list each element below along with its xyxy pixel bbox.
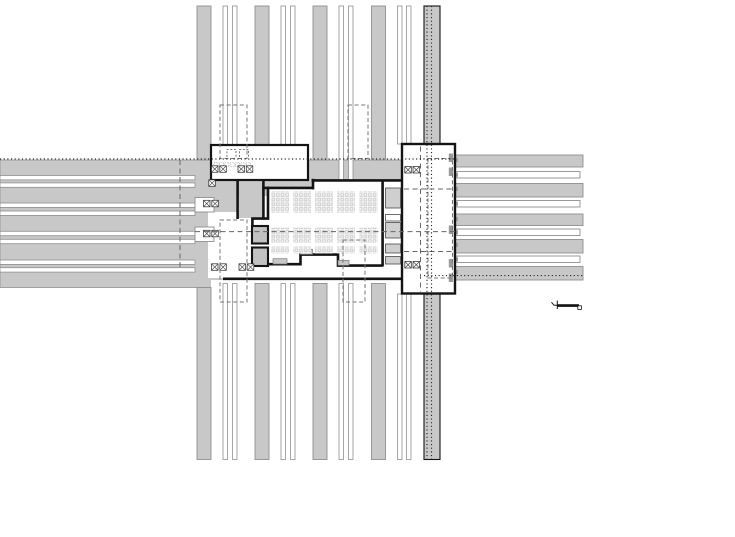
service-boxes (386, 188, 401, 264)
station-floor-plan (0, 0, 735, 537)
corridor-gray (239, 180, 262, 218)
architectural-plan-canvas (0, 0, 735, 537)
